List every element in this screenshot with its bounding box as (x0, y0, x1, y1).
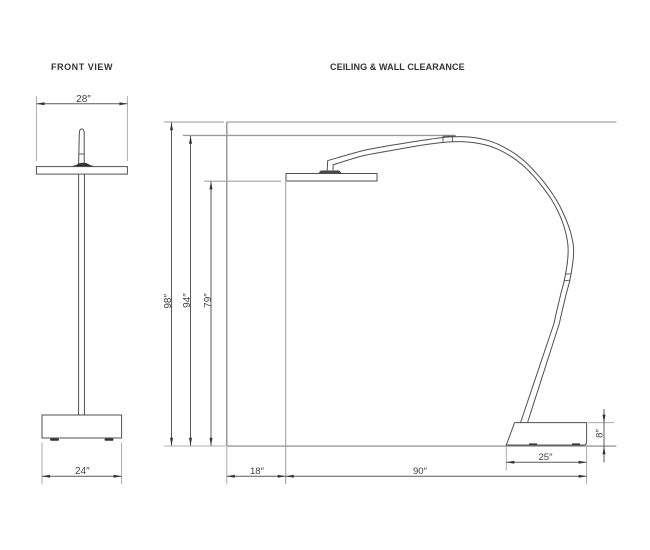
svg-text:90″: 90″ (413, 466, 428, 477)
svg-text:79″: 79″ (203, 293, 214, 308)
svg-text:8″: 8″ (594, 429, 605, 438)
svg-text:98″: 98″ (163, 294, 174, 309)
svg-text:25″: 25″ (538, 452, 553, 463)
svg-text:94″: 94″ (182, 293, 193, 308)
svg-text:24″: 24″ (75, 466, 90, 477)
svg-text:FRONT VIEW: FRONT VIEW (51, 62, 113, 72)
svg-text:CEILING & WALL CLEARANCE: CEILING & WALL CLEARANCE (330, 62, 465, 72)
svg-text:28″: 28″ (76, 94, 91, 105)
svg-text:18″: 18″ (250, 466, 265, 477)
